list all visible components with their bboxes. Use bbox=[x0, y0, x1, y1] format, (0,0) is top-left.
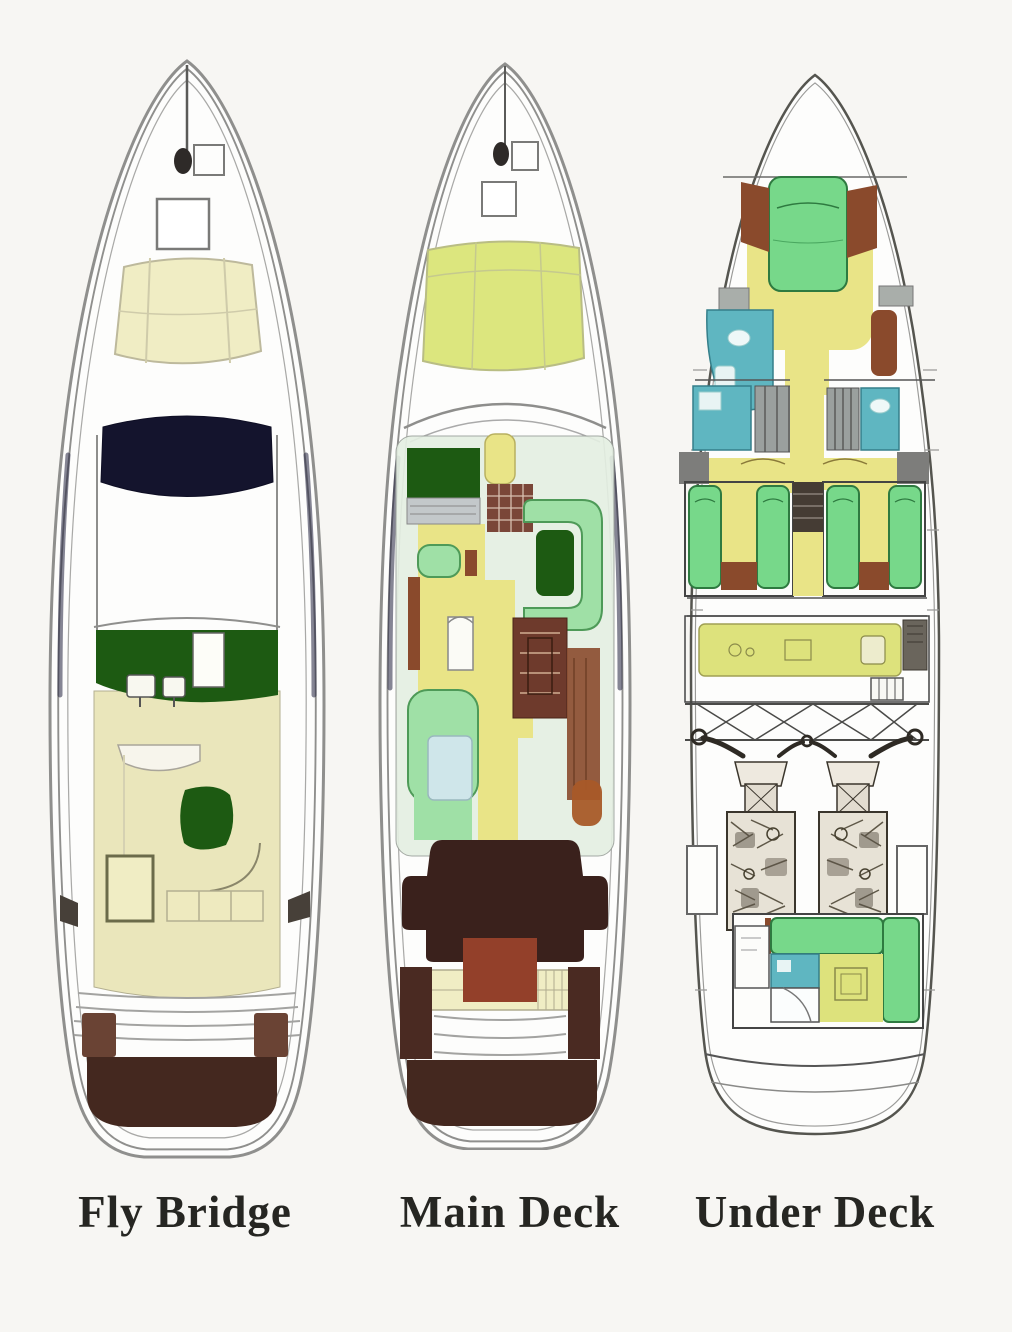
cabinet-small bbox=[465, 550, 477, 576]
helm-seat-right bbox=[163, 677, 185, 697]
vip-cabinet-left bbox=[741, 182, 769, 252]
swim-platform bbox=[407, 1060, 597, 1126]
windshield bbox=[101, 416, 273, 497]
vip-cabinet-right bbox=[847, 185, 877, 258]
underdeck-label: Under Deck bbox=[665, 1186, 965, 1256]
flybridge-plan-svg bbox=[30, 55, 340, 1165]
nightstand-starboard bbox=[859, 562, 889, 590]
aft-pillar-right bbox=[568, 967, 600, 1059]
galley-sink bbox=[861, 636, 885, 664]
guest-bed-4 bbox=[889, 486, 921, 588]
aft-cabinet bbox=[572, 780, 602, 826]
maindeck-cockpit bbox=[400, 840, 608, 1126]
nightstand-port bbox=[721, 562, 757, 590]
mid-bathrooms bbox=[679, 375, 935, 493]
coffee-table bbox=[428, 736, 472, 800]
helm-console bbox=[96, 630, 278, 702]
tank-port bbox=[687, 846, 717, 914]
swim-platform bbox=[87, 1057, 277, 1127]
crew-floor bbox=[819, 954, 883, 1022]
maindeck-plan-svg bbox=[370, 58, 650, 1150]
sink-2 bbox=[870, 399, 890, 413]
wet-bar bbox=[107, 856, 153, 921]
bar-counter bbox=[485, 434, 515, 484]
appliance-block bbox=[903, 620, 927, 670]
maindeck-plan bbox=[370, 58, 650, 1150]
dresser-right bbox=[871, 310, 897, 376]
storage-room bbox=[735, 926, 769, 988]
sunpad-cushion bbox=[423, 241, 584, 370]
side-band-right bbox=[897, 452, 929, 484]
bathroom-sink bbox=[728, 330, 750, 346]
aft-pillar-left bbox=[82, 1013, 116, 1057]
helm-dash bbox=[407, 498, 480, 524]
aft-pillar-right bbox=[254, 1013, 288, 1057]
guest-bed-3 bbox=[827, 486, 859, 588]
galley-strip bbox=[408, 577, 420, 670]
crew-shower bbox=[771, 988, 819, 1022]
crew-bed-2 bbox=[883, 918, 919, 1022]
guest-bed-1 bbox=[689, 486, 721, 588]
anchor-winch-icon bbox=[174, 148, 192, 174]
sofa-table bbox=[536, 530, 574, 596]
helm-console bbox=[407, 448, 480, 498]
aft-pillar-left bbox=[400, 967, 432, 1059]
flybridge-label: Fly Bridge bbox=[30, 1186, 340, 1256]
vip-bed bbox=[769, 177, 847, 291]
maindeck-bow-sunpad bbox=[423, 241, 584, 370]
maindeck-label: Main Deck bbox=[370, 1186, 650, 1256]
side-sofa-port bbox=[418, 545, 460, 577]
tank-starboard bbox=[897, 846, 927, 914]
helm-seat-left bbox=[127, 675, 155, 697]
yacht-deck-plans-canvas: Fly Bridge Main Deck Under Deck bbox=[0, 0, 1012, 1332]
underdeck-plan bbox=[665, 70, 965, 1145]
crew-bed-1 bbox=[771, 918, 883, 954]
crew-cabin bbox=[733, 914, 923, 1028]
aft-bench bbox=[167, 891, 263, 921]
corridor-aft bbox=[793, 532, 823, 596]
flybridge-plan bbox=[30, 55, 340, 1165]
underdeck-plan-svg bbox=[665, 70, 965, 1145]
locker-right bbox=[879, 286, 913, 306]
shower-fixture bbox=[699, 392, 721, 410]
galley-cabinets bbox=[567, 648, 600, 800]
anchor-winch-icon bbox=[493, 142, 509, 166]
crew-sink bbox=[777, 960, 791, 972]
guest-cabins bbox=[685, 482, 925, 596]
side-band-left bbox=[679, 452, 709, 484]
guest-bed-2 bbox=[757, 486, 789, 588]
bow-hatch-large bbox=[482, 182, 516, 216]
u-sofa-lower-tail bbox=[414, 794, 472, 840]
arch-doorway bbox=[448, 617, 473, 670]
helm-companionway-door bbox=[193, 633, 224, 687]
bow-hatch-large bbox=[157, 199, 209, 249]
spa-table bbox=[180, 786, 233, 849]
cockpit-table bbox=[463, 938, 537, 1002]
shower-room-starboard bbox=[861, 388, 899, 450]
flybridge-bow-sunpad bbox=[115, 258, 261, 363]
stairwell bbox=[793, 482, 823, 532]
